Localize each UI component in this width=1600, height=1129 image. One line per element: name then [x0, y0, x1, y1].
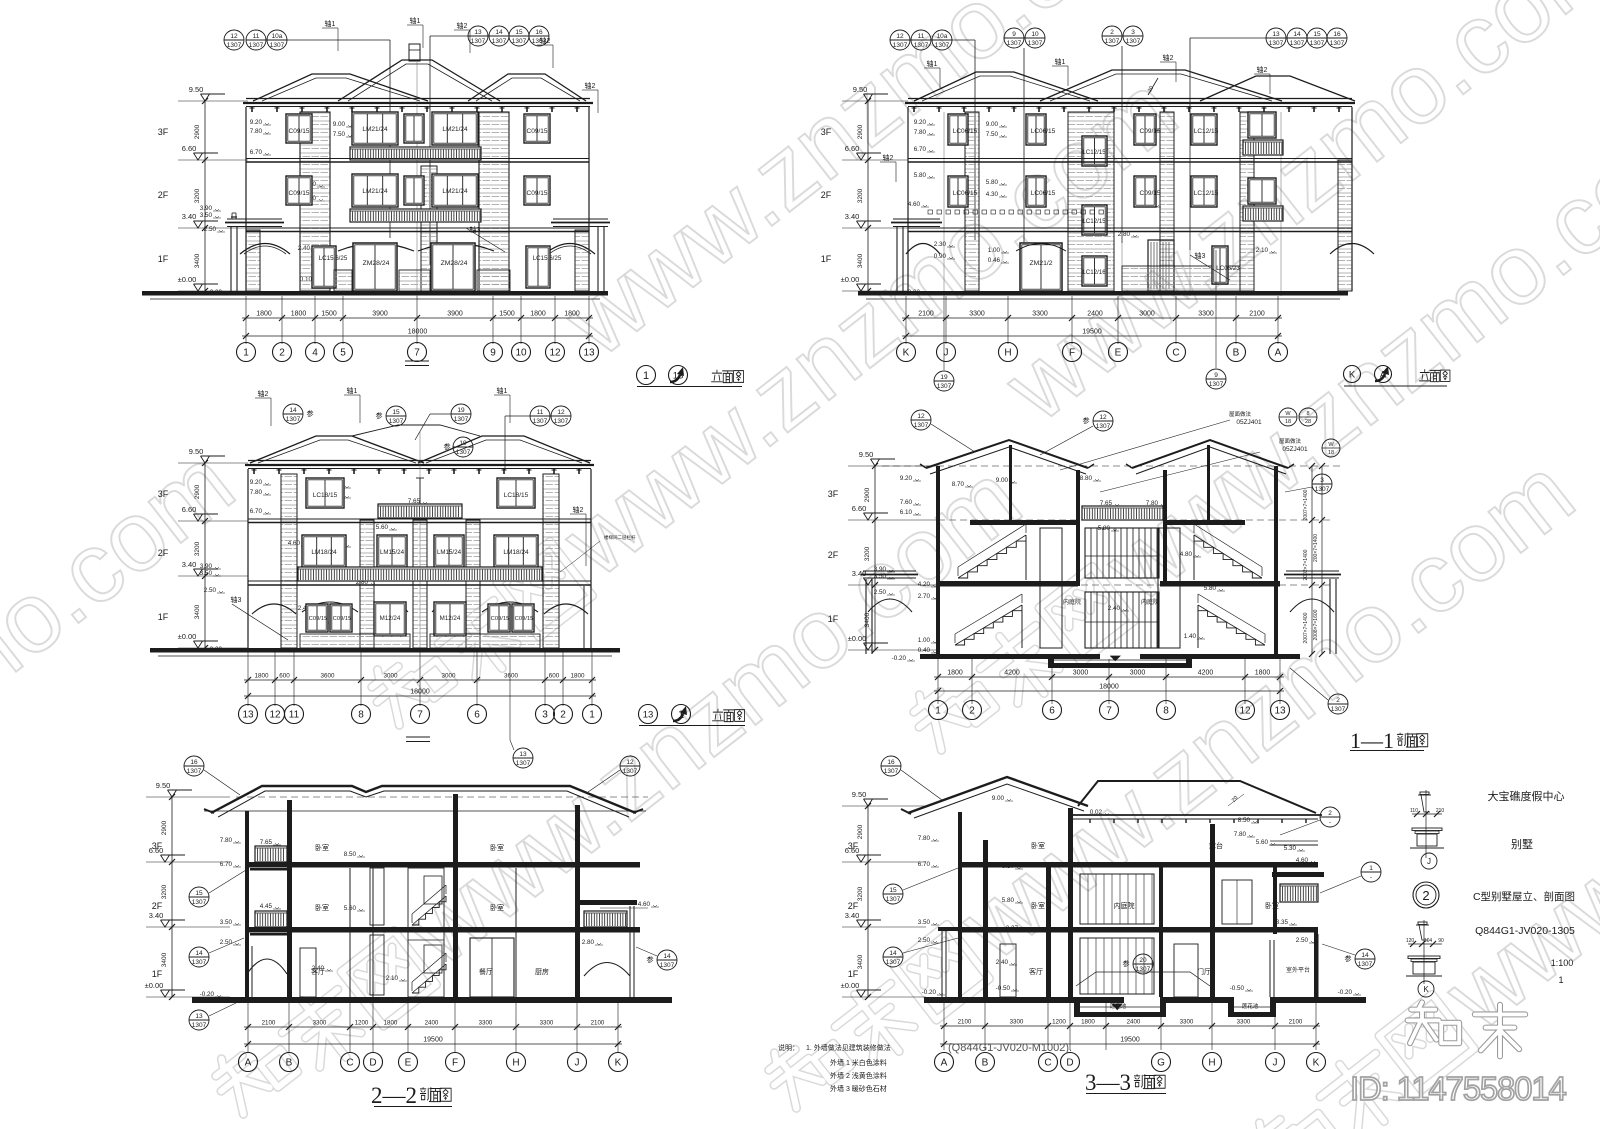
svg-text:7.50: 7.50 [986, 131, 999, 138]
svg-text:C09/15: C09/15 [1140, 190, 1161, 197]
svg-text:1307: 1307 [554, 418, 569, 425]
svg-text:LM21/24: LM21/24 [362, 126, 388, 133]
svg-text:1307: 1307 [456, 449, 471, 456]
svg-text:3F: 3F [158, 489, 169, 499]
svg-text:14: 14 [663, 953, 671, 960]
svg-text:2007×7=1400: 2007×7=1400 [1303, 612, 1309, 643]
svg-text:10: 10 [515, 348, 527, 359]
svg-text:-0.20: -0.20 [200, 991, 215, 998]
svg-text:W: W [1328, 442, 1334, 448]
svg-text:-: - [1329, 819, 1331, 826]
svg-text:7.80: 7.80 [250, 128, 263, 135]
svg-text:18: 18 [1328, 450, 1334, 456]
svg-text:B: B [1233, 348, 1240, 359]
svg-text:C型别墅屋立、剖面图: C型别墅屋立、剖面图 [1473, 890, 1575, 903]
svg-text:16: 16 [887, 759, 895, 766]
svg-text:LC06/23: LC06/23 [1216, 265, 1240, 272]
svg-text:19500: 19500 [1120, 1037, 1140, 1044]
svg-text:3.50: 3.50 [220, 919, 233, 926]
svg-text:3300: 3300 [969, 311, 985, 318]
svg-text:LM15/24: LM15/24 [437, 549, 462, 556]
svg-text:6.57: 6.57 [1002, 863, 1015, 870]
svg-text:卧室: 卧室 [315, 903, 329, 912]
svg-text:16: 16 [535, 29, 543, 36]
svg-text:1307: 1307 [914, 422, 929, 429]
svg-text:13: 13 [1274, 706, 1286, 717]
svg-text:10a: 10a [272, 33, 283, 40]
svg-text:3.40: 3.40 [182, 560, 197, 569]
svg-text:1.40: 1.40 [1184, 633, 1197, 640]
svg-text:3400: 3400 [161, 952, 168, 967]
svg-text:9.50: 9.50 [156, 781, 171, 790]
svg-text:3300: 3300 [313, 1020, 327, 1027]
svg-text:K: K [1423, 985, 1429, 994]
svg-text:1307: 1307 [1209, 381, 1224, 388]
svg-text:16: 16 [1333, 31, 1341, 38]
svg-text:6.60: 6.60 [845, 144, 860, 153]
svg-text:K: K [903, 348, 910, 359]
svg-text:1307: 1307 [187, 768, 202, 775]
svg-text:3.40: 3.40 [845, 911, 860, 920]
svg-text:1F: 1F [158, 612, 169, 622]
svg-text:1307: 1307 [886, 896, 901, 903]
svg-text:H: H [512, 1058, 519, 1069]
svg-text:±0.00: ±0.00 [178, 632, 197, 641]
svg-text:12: 12 [1099, 414, 1107, 421]
svg-text:1F: 1F [821, 254, 832, 264]
svg-text:9.50: 9.50 [852, 790, 867, 799]
svg-text:2400: 2400 [1127, 1019, 1141, 1026]
svg-text:轴3: 轴3 [470, 225, 481, 234]
svg-text:28: 28 [1305, 419, 1311, 425]
svg-text:4.60: 4.60 [908, 201, 921, 208]
svg-text:-0.20: -0.20 [1338, 989, 1353, 996]
svg-text:4.30: 4.30 [986, 191, 999, 198]
svg-text:参: 参 [1083, 416, 1090, 425]
svg-text:轴3: 轴3 [1195, 251, 1206, 260]
svg-text:9.00: 9.00 [996, 477, 1009, 484]
svg-text:1307: 1307 [1105, 38, 1120, 45]
svg-text:2: 2 [1110, 29, 1114, 36]
svg-text:参: 参 [1345, 954, 1352, 963]
svg-text:2F: 2F [158, 548, 169, 558]
svg-text:LC12/15: LC12/15 [1082, 149, 1106, 156]
svg-text:-0.50: -0.50 [1230, 985, 1245, 992]
svg-text:3300: 3300 [1032, 311, 1048, 318]
svg-text:3000: 3000 [1073, 670, 1089, 677]
svg-text:3F: 3F [848, 841, 859, 851]
svg-text:1307: 1307 [660, 962, 675, 969]
svg-text:E: E [1115, 348, 1122, 359]
svg-text:1F: 1F [848, 969, 859, 979]
svg-text:13: 13 [195, 1013, 203, 1020]
svg-text:2.10: 2.10 [386, 975, 399, 982]
svg-text:-0.50: -0.50 [996, 985, 1011, 992]
svg-text:参: 参 [1123, 959, 1130, 968]
svg-text:9.20: 9.20 [250, 479, 263, 486]
svg-text:3400: 3400 [857, 253, 864, 268]
svg-text:说明：: 说明： [778, 1043, 799, 1052]
svg-text:F: F [1069, 348, 1075, 359]
svg-text:12: 12 [549, 348, 561, 359]
svg-text:2: 2 [560, 710, 566, 721]
svg-text:LM18/24: LM18/24 [503, 549, 529, 556]
svg-text:4.80: 4.80 [1180, 551, 1193, 558]
svg-text:2.70: 2.70 [918, 593, 931, 600]
svg-text:轴2: 轴2 [457, 21, 468, 30]
svg-text:1307: 1307 [533, 418, 548, 425]
svg-text:12: 12 [269, 710, 281, 721]
svg-text:3200: 3200 [194, 188, 201, 203]
svg-text:-0.20: -0.20 [892, 655, 907, 662]
svg-text:2400: 2400 [425, 1020, 439, 1027]
svg-text:0.02: 0.02 [1090, 809, 1103, 816]
svg-text:2.80: 2.80 [582, 939, 595, 946]
svg-text:5.60: 5.60 [344, 905, 357, 912]
svg-text:LC12/15: LC12/15 [1194, 128, 1219, 135]
svg-text:3300: 3300 [1198, 311, 1214, 318]
svg-text:卧室: 卧室 [315, 843, 329, 852]
svg-text:11: 11 [253, 33, 260, 40]
svg-text:3.90: 3.90 [200, 205, 213, 212]
svg-text:3.90: 3.90 [874, 566, 887, 573]
svg-text:3400: 3400 [194, 253, 201, 268]
svg-text:参: 参 [647, 955, 654, 964]
svg-text:600: 600 [549, 673, 560, 680]
svg-text:13: 13 [519, 751, 527, 758]
svg-text:2F: 2F [152, 901, 163, 911]
svg-text:13: 13 [242, 710, 254, 721]
svg-text:1307: 1307 [1007, 40, 1022, 47]
svg-text:4.60: 4.60 [638, 901, 651, 908]
svg-text:4: 4 [312, 348, 318, 359]
svg-text:LC06/15: LC06/15 [953, 190, 978, 197]
svg-text:1800: 1800 [384, 1020, 398, 1027]
svg-text:外墙 3 暖砂色石材: 外墙 3 暖砂色石材 [830, 1084, 887, 1093]
svg-text:1307: 1307 [192, 959, 207, 966]
svg-text:别墅: 别墅 [1511, 838, 1533, 851]
svg-text:2.50: 2.50 [204, 587, 217, 594]
svg-text:LC18/15: LC18/15 [504, 492, 529, 499]
svg-text:3: 3 [542, 710, 548, 721]
svg-text:9.50: 9.50 [859, 450, 874, 459]
svg-text:3300: 3300 [479, 1020, 493, 1027]
svg-text:ZM21/2: ZM21/2 [1029, 260, 1052, 267]
svg-text:C09/15: C09/15 [515, 616, 534, 622]
svg-text:2: 2 [1422, 888, 1429, 903]
svg-text:C09/15: C09/15 [527, 128, 548, 135]
svg-text:轴1: 轴1 [497, 386, 508, 395]
svg-text:1307: 1307 [1358, 961, 1373, 968]
svg-text:7.60: 7.60 [900, 499, 913, 506]
svg-text:1307: 1307 [454, 416, 469, 423]
svg-text:200×7=1400: 200×7=1400 [1313, 534, 1319, 562]
svg-text:2900: 2900 [857, 124, 864, 139]
svg-text:13: 13 [583, 348, 595, 359]
svg-text:室外平台: 室外平台 [1286, 966, 1310, 974]
svg-text:轴1: 轴1 [325, 19, 336, 28]
svg-text:1307: 1307 [937, 383, 952, 390]
svg-text:2F: 2F [158, 190, 169, 200]
svg-text:C09/15: C09/15 [527, 190, 548, 197]
svg-text:F: F [452, 1058, 458, 1069]
svg-text:19500: 19500 [1082, 329, 1102, 336]
svg-text:客厅: 客厅 [1029, 967, 1043, 976]
svg-text:0.40: 0.40 [918, 647, 931, 654]
svg-text:7.50: 7.50 [333, 131, 346, 138]
svg-text:2100: 2100 [958, 1019, 972, 1026]
svg-text:莲花池: 莲花池 [1242, 1002, 1259, 1010]
svg-text:1800: 1800 [570, 673, 585, 680]
svg-text:1: 1 [1558, 975, 1563, 985]
svg-text:1307: 1307 [512, 38, 527, 45]
svg-text:1F: 1F [152, 969, 163, 979]
svg-text:5.60: 5.60 [1256, 839, 1269, 846]
svg-text:1307: 1307 [935, 42, 950, 49]
svg-text:2F: 2F [828, 550, 839, 560]
svg-text:轴3: 轴3 [231, 595, 242, 604]
svg-text:6.70: 6.70 [220, 861, 233, 868]
svg-text:3.37: 3.37 [1006, 925, 1019, 932]
svg-text:1800: 1800 [1081, 1019, 1095, 1026]
svg-text:9.00: 9.00 [333, 121, 346, 128]
svg-text:2: 2 [1328, 810, 1332, 817]
svg-text:6.70: 6.70 [250, 149, 263, 156]
svg-text:2900: 2900 [864, 487, 871, 502]
svg-text:3200: 3200 [864, 546, 871, 561]
svg-text:轴2: 轴2 [585, 81, 596, 90]
svg-text:5.30: 5.30 [1284, 845, 1297, 852]
svg-text:3F: 3F [828, 489, 839, 499]
svg-text:D: D [1066, 1058, 1073, 1069]
svg-text:LC06/15: LC06/15 [1031, 190, 1056, 197]
svg-text:K: K [1349, 369, 1356, 380]
svg-text:C: C [1044, 1058, 1051, 1069]
svg-text:1—1: 1—1 [1350, 728, 1394, 753]
svg-text:9: 9 [490, 348, 496, 359]
svg-text:1307: 1307 [884, 768, 899, 775]
svg-text:3400: 3400 [857, 954, 864, 969]
svg-text:3200: 3200 [857, 886, 864, 901]
svg-text:门厅: 门厅 [1197, 967, 1211, 976]
svg-text:(Q844G1-JV020-M1002).: (Q844G1-JV020-M1002). [948, 1042, 1072, 1054]
svg-text:0.90: 0.90 [934, 253, 947, 260]
svg-text:1307: 1307 [1126, 38, 1141, 45]
svg-text:9.00: 9.00 [992, 795, 1005, 802]
svg-text:12: 12 [917, 413, 925, 420]
svg-text:7.80: 7.80 [250, 489, 263, 496]
svg-text:1307: 1307 [270, 42, 285, 49]
svg-text:05ZJ401: 05ZJ401 [1282, 446, 1308, 453]
svg-text:1:100: 1:100 [1551, 958, 1574, 968]
svg-text:7: 7 [417, 710, 423, 721]
svg-text:14: 14 [889, 950, 897, 957]
svg-text:1.00: 1.00 [988, 247, 1001, 254]
svg-text:2.50: 2.50 [1296, 937, 1309, 944]
svg-text:1800: 1800 [530, 311, 546, 318]
svg-text:1307: 1307 [1096, 423, 1111, 430]
svg-text:屋面做法: 屋面做法 [1279, 437, 1302, 445]
svg-text:8.80: 8.80 [1080, 475, 1093, 482]
svg-text:1307: 1307 [471, 38, 486, 45]
svg-text:8: 8 [1163, 706, 1169, 717]
svg-text:1307: 1307 [389, 418, 404, 425]
svg-text:3600: 3600 [320, 673, 335, 680]
svg-text:15: 15 [889, 887, 897, 894]
svg-text:B: B [982, 1058, 989, 1069]
svg-text:屋面做法: 屋面做法 [1229, 410, 1252, 418]
svg-text:ID: 1147558014: ID: 1147558014 [1350, 1070, 1566, 1107]
svg-text:LC15.6/25: LC15.6/25 [319, 255, 348, 262]
svg-text:轴2: 轴2 [540, 36, 551, 45]
svg-text:1: 1 [643, 370, 649, 382]
svg-text:2100: 2100 [591, 1020, 605, 1027]
svg-text:2008×7=1600: 2008×7=1600 [1313, 609, 1319, 640]
svg-text:轴1: 轴1 [927, 59, 938, 68]
svg-text:7.80: 7.80 [914, 129, 927, 136]
svg-text:5.80: 5.80 [1002, 897, 1015, 904]
svg-text:-0.20: -0.20 [922, 989, 937, 996]
svg-text:LM21/24: LM21/24 [442, 126, 468, 133]
svg-text:E: E [405, 1058, 412, 1069]
svg-text:14: 14 [289, 407, 297, 414]
svg-text:11: 11 [289, 710, 300, 721]
svg-text:3.40: 3.40 [149, 911, 164, 920]
svg-text:14: 14 [495, 29, 503, 36]
svg-text:1307: 1307 [893, 42, 908, 49]
svg-text:2.40: 2.40 [312, 965, 325, 972]
svg-text:9.50: 9.50 [853, 85, 868, 94]
svg-text:90: 90 [1438, 938, 1444, 944]
svg-text:3.40: 3.40 [845, 212, 860, 221]
svg-text:13: 13 [1272, 31, 1280, 38]
svg-text:6.10: 6.10 [900, 509, 913, 516]
svg-text:9: 9 [1012, 31, 1016, 38]
svg-text:14: 14 [1293, 31, 1301, 38]
svg-text:卧室: 卧室 [490, 843, 504, 852]
svg-text:11: 11 [537, 409, 544, 416]
svg-text:12: 12 [557, 409, 565, 416]
svg-text:LC12/15: LC12/15 [1194, 190, 1219, 197]
svg-text:1307: 1307 [192, 1022, 207, 1029]
svg-text:2900: 2900 [161, 820, 168, 835]
svg-text:参: 参 [376, 411, 383, 420]
svg-text:J: J [1273, 1058, 1278, 1069]
svg-text:10: 10 [1031, 31, 1039, 38]
svg-text:600: 600 [279, 673, 290, 680]
svg-text:1307: 1307 [623, 768, 638, 775]
svg-text:1200: 1200 [355, 1020, 369, 1027]
svg-text:1800: 1800 [256, 311, 272, 318]
svg-text:ZM28/24: ZM28/24 [441, 260, 468, 267]
svg-text:2100: 2100 [1289, 1019, 1303, 1026]
svg-text:LM18/24: LM18/24 [311, 549, 337, 556]
svg-text:14: 14 [195, 950, 203, 957]
svg-text:7.65: 7.65 [260, 839, 273, 846]
svg-text:8: 8 [1306, 411, 1309, 417]
svg-text:3.40: 3.40 [852, 569, 867, 578]
svg-text:7: 7 [414, 348, 420, 359]
svg-text:J: J [575, 1058, 580, 1069]
svg-text:1307: 1307 [914, 42, 929, 49]
svg-text:轴1: 轴1 [1055, 57, 1066, 66]
svg-text:5.60: 5.60 [376, 524, 389, 531]
svg-text:3.50: 3.50 [200, 212, 213, 219]
svg-text:LC15.6/25: LC15.6/25 [533, 255, 562, 262]
svg-text:2.30: 2.30 [934, 241, 947, 248]
svg-text:4200: 4200 [1004, 670, 1020, 677]
svg-text:LC06/15: LC06/15 [1031, 128, 1056, 135]
svg-text:1800: 1800 [1255, 670, 1271, 677]
svg-text:B: B [286, 1058, 293, 1069]
svg-text:15: 15 [195, 890, 203, 897]
svg-text:C09/15: C09/15 [309, 616, 328, 622]
svg-text:露台: 露台 [1209, 841, 1223, 850]
svg-text:内庭院: 内庭院 [1141, 598, 1159, 606]
svg-text:15: 15 [392, 409, 400, 416]
svg-text:C09/15: C09/15 [333, 616, 352, 622]
svg-text:1307: 1307 [1269, 40, 1284, 47]
svg-text:18000: 18000 [1099, 684, 1119, 691]
svg-text:3200: 3200 [161, 884, 168, 899]
svg-text:1F: 1F [158, 254, 169, 264]
svg-text:H: H [1004, 348, 1011, 359]
svg-text:3200: 3200 [857, 188, 864, 203]
svg-text:卧室: 卧室 [1031, 901, 1045, 910]
svg-text:6: 6 [474, 710, 480, 721]
svg-text:3—3: 3—3 [1085, 1070, 1131, 1095]
svg-text:C: C [346, 1058, 353, 1069]
svg-text:3300: 3300 [1237, 1019, 1251, 1026]
svg-text:2900: 2900 [194, 124, 201, 139]
svg-text:1800: 1800 [564, 311, 580, 318]
svg-text:3000: 3000 [1130, 670, 1146, 677]
svg-text:1200: 1200 [1052, 1019, 1066, 1026]
svg-text:1: 1 [589, 710, 595, 721]
svg-text:A: A [1275, 348, 1282, 359]
svg-text:3300: 3300 [1180, 1019, 1194, 1026]
svg-text:C09/15: C09/15 [289, 190, 310, 197]
svg-text:1307: 1307 [286, 416, 301, 423]
svg-text:C09/15: C09/15 [1140, 128, 1161, 135]
svg-text:卧室: 卧室 [1265, 901, 1279, 910]
svg-text:LC12/16: LC12/16 [1082, 269, 1106, 276]
svg-text:6.70: 6.70 [914, 146, 927, 153]
svg-text:11: 11 [918, 33, 925, 40]
svg-text:3300: 3300 [540, 1020, 554, 1027]
svg-text:6.70: 6.70 [918, 861, 931, 868]
svg-text:LC12/15: LC12/15 [1082, 218, 1106, 225]
svg-text:2900: 2900 [194, 484, 201, 499]
svg-text:Q844G1-JV020-1305: Q844G1-JV020-1305 [1475, 925, 1575, 937]
svg-text:2: 2 [279, 348, 285, 359]
svg-text:3600: 3600 [504, 673, 519, 680]
svg-text:1.00: 1.00 [918, 637, 931, 644]
svg-text:3400: 3400 [864, 612, 871, 627]
svg-text:9.20: 9.20 [900, 475, 913, 482]
svg-text:±0.00: ±0.00 [841, 981, 860, 990]
svg-text:2.50: 2.50 [220, 939, 233, 946]
svg-text:2—2: 2—2 [371, 1083, 417, 1108]
svg-text:3F: 3F [152, 841, 163, 851]
svg-text:K: K [615, 1058, 622, 1069]
svg-text:7.80: 7.80 [220, 837, 233, 844]
svg-text:3.50: 3.50 [918, 919, 931, 926]
svg-text:轴2: 轴2 [258, 389, 269, 398]
svg-text:1500: 1500 [499, 311, 515, 318]
svg-text:卧室: 卧室 [490, 903, 504, 912]
svg-text:3200: 3200 [194, 541, 201, 556]
